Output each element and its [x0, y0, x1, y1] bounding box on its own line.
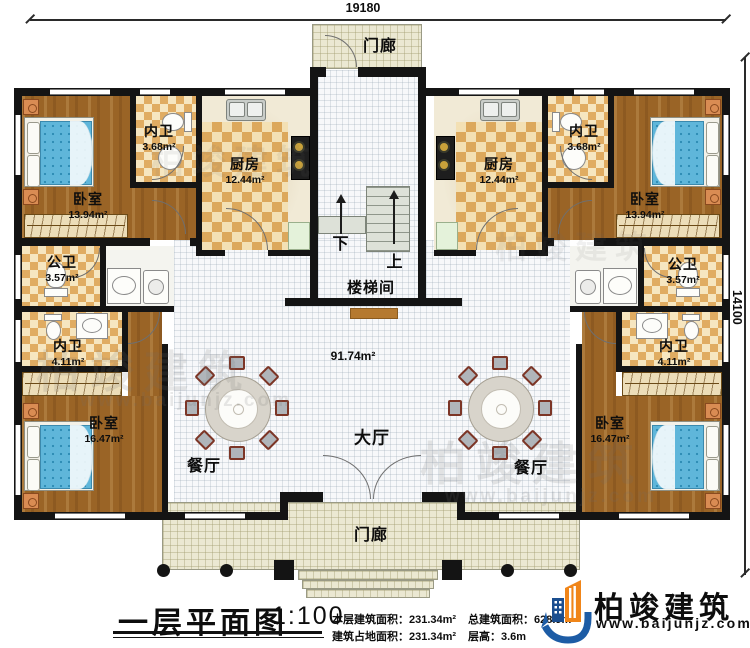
label-hall: 大厅	[354, 424, 390, 449]
wall	[196, 250, 225, 256]
washer-drum	[580, 279, 596, 295]
window	[574, 89, 604, 95]
drawing-title: 一层平面图	[118, 598, 288, 642]
label-porch-bottom: 门廊	[354, 521, 388, 545]
stair-arrow-up	[393, 198, 395, 244]
nightstand	[705, 403, 721, 419]
dimension-line-right	[744, 57, 746, 575]
label-bath-inner-top-right: 内卫3.68m²	[567, 121, 600, 153]
wall	[457, 492, 465, 520]
window	[619, 513, 689, 519]
toilet-tank	[682, 314, 700, 321]
label-bedroom-bottom-left: 卧室16.47m²	[84, 413, 123, 445]
entry-step	[298, 570, 438, 580]
porch-column	[274, 560, 294, 580]
wardrobe-bottom-left	[22, 372, 122, 396]
label-bath-inner-top-left: 内卫3.68m²	[142, 121, 175, 153]
company-url: www.baijunjz.com	[596, 615, 750, 631]
stove-burner	[438, 159, 450, 171]
fridge-icon	[436, 222, 458, 250]
label-bedroom-top-left: 卧室13.94m²	[68, 189, 107, 221]
dining-table-center	[496, 404, 507, 415]
window	[15, 255, 21, 299]
pillow	[706, 155, 719, 187]
dimension-height-label: 14100	[730, 290, 744, 325]
dining-chair-icon	[492, 356, 508, 370]
dining-chair-icon	[448, 400, 462, 416]
kitchen-sink-basin	[501, 102, 517, 117]
window	[723, 320, 729, 362]
window	[225, 89, 285, 95]
wall	[638, 246, 644, 312]
label-dining-left: 餐厅	[187, 452, 221, 476]
kitchen-sink-basin	[483, 102, 499, 117]
pillow	[27, 122, 40, 154]
label-kitchen-left: 厨房12.44m²	[225, 154, 264, 186]
porch-column	[442, 560, 462, 580]
porch-column	[220, 564, 233, 577]
label-stairwell: 楼梯间	[347, 277, 395, 298]
window	[55, 513, 125, 519]
wall	[519, 250, 548, 256]
bed-sheet	[652, 121, 675, 185]
toilet-tank	[44, 288, 68, 297]
label-porch-top: 门廊	[363, 32, 397, 56]
dining-table-center	[233, 404, 244, 415]
stove-burner	[293, 141, 305, 153]
wall	[542, 96, 548, 256]
company-logo-icon	[538, 576, 596, 644]
toilet-tank	[552, 112, 560, 132]
wall	[608, 96, 614, 188]
window	[15, 115, 21, 175]
porch-column	[157, 564, 170, 577]
porch-column	[501, 564, 514, 577]
nightstand	[23, 493, 39, 509]
nightstand	[23, 403, 39, 419]
dining-chair-icon	[185, 400, 199, 416]
sink-icon	[82, 318, 102, 333]
wall	[190, 238, 196, 246]
wall	[548, 238, 554, 246]
bed-sheet	[652, 425, 675, 489]
wall	[162, 344, 168, 512]
stat-storey-height: 层高：3.6m	[468, 628, 526, 644]
window	[140, 89, 170, 95]
toilet-tank	[184, 112, 192, 132]
window	[15, 425, 21, 495]
wall	[434, 250, 476, 256]
pillow	[27, 459, 40, 491]
label-bedroom-top-right: 卧室13.94m²	[625, 189, 664, 221]
pillow	[706, 122, 719, 154]
dimension-line-top	[30, 19, 726, 21]
wall	[130, 182, 196, 188]
pillow	[706, 459, 719, 491]
window	[185, 513, 245, 519]
sink-icon	[642, 318, 662, 333]
window	[50, 89, 110, 95]
wall	[100, 246, 106, 312]
wall	[310, 67, 318, 306]
wall	[358, 67, 426, 77]
wall	[130, 96, 136, 188]
stairs-icon	[366, 186, 410, 252]
window	[499, 513, 559, 519]
dimension-width-label: 19180	[346, 1, 381, 15]
sink-icon	[112, 276, 136, 295]
sink-icon	[608, 276, 632, 295]
pillow	[27, 426, 40, 458]
doormat	[350, 308, 398, 319]
dining-chair-icon	[229, 446, 245, 460]
label-bedroom-bottom-right: 卧室16.47m²	[590, 413, 629, 445]
washer-drum	[148, 279, 164, 295]
label-dining-right: 餐厅	[514, 454, 548, 478]
label-hall-area: 91.74m²	[331, 349, 376, 363]
toilet-tank	[44, 314, 62, 321]
wall	[285, 298, 462, 306]
stat-floor-area: 本层建筑面积：231.34m²	[332, 611, 456, 627]
nightstand	[23, 189, 39, 205]
floor-plan: 19180 14100	[0, 0, 750, 648]
label-bath-inner-bottom-left: 内卫4.11m²	[52, 336, 85, 368]
wall	[14, 238, 150, 246]
dining-chair-icon	[492, 446, 508, 460]
nightstand	[705, 189, 721, 205]
nightstand	[705, 99, 721, 115]
pillow	[27, 155, 40, 187]
stove-burner	[438, 141, 450, 153]
wall	[548, 182, 614, 188]
dining-chair-icon	[275, 400, 289, 416]
dining-chair-icon	[229, 356, 245, 370]
wall	[280, 492, 288, 520]
window	[723, 255, 729, 299]
window	[634, 89, 694, 95]
fridge-icon	[288, 222, 310, 250]
stove-burner	[293, 159, 305, 171]
label-stairs-up: 上	[386, 248, 403, 272]
entry-step	[306, 589, 430, 598]
wall	[196, 96, 202, 256]
window	[15, 320, 21, 362]
nightstand	[705, 493, 721, 509]
pillow	[706, 426, 719, 458]
dining-chair-icon	[538, 400, 552, 416]
title-underline	[113, 631, 322, 634]
wall	[576, 344, 582, 512]
entry-step	[302, 580, 434, 589]
label-stairs-down: 下	[332, 230, 349, 254]
window	[723, 425, 729, 495]
wall	[310, 67, 326, 77]
kitchen-sink-basin	[247, 102, 263, 117]
window	[459, 89, 519, 95]
wall	[594, 238, 730, 246]
label-bath-inner-bottom-right: 内卫4.11m²	[658, 336, 691, 368]
wall	[268, 250, 310, 256]
wall	[616, 312, 622, 372]
toilet-tank	[676, 288, 700, 297]
wall	[418, 67, 426, 306]
window	[723, 115, 729, 175]
stair-arrow-down-head	[336, 194, 346, 203]
title-underline	[113, 637, 324, 638]
wardrobe-bottom-right	[622, 372, 722, 396]
kitchen-sink-basin	[229, 102, 245, 117]
label-kitchen-right: 厨房12.44m²	[479, 154, 518, 186]
label-bath-public-right: 公卫3.57m²	[666, 254, 699, 286]
label-bath-public-left: 公卫3.57m²	[45, 252, 78, 284]
stair-arrow-up-head	[389, 190, 399, 199]
nightstand	[23, 99, 39, 115]
stat-footprint-area: 建筑占地面积：231.34m²	[332, 628, 456, 644]
